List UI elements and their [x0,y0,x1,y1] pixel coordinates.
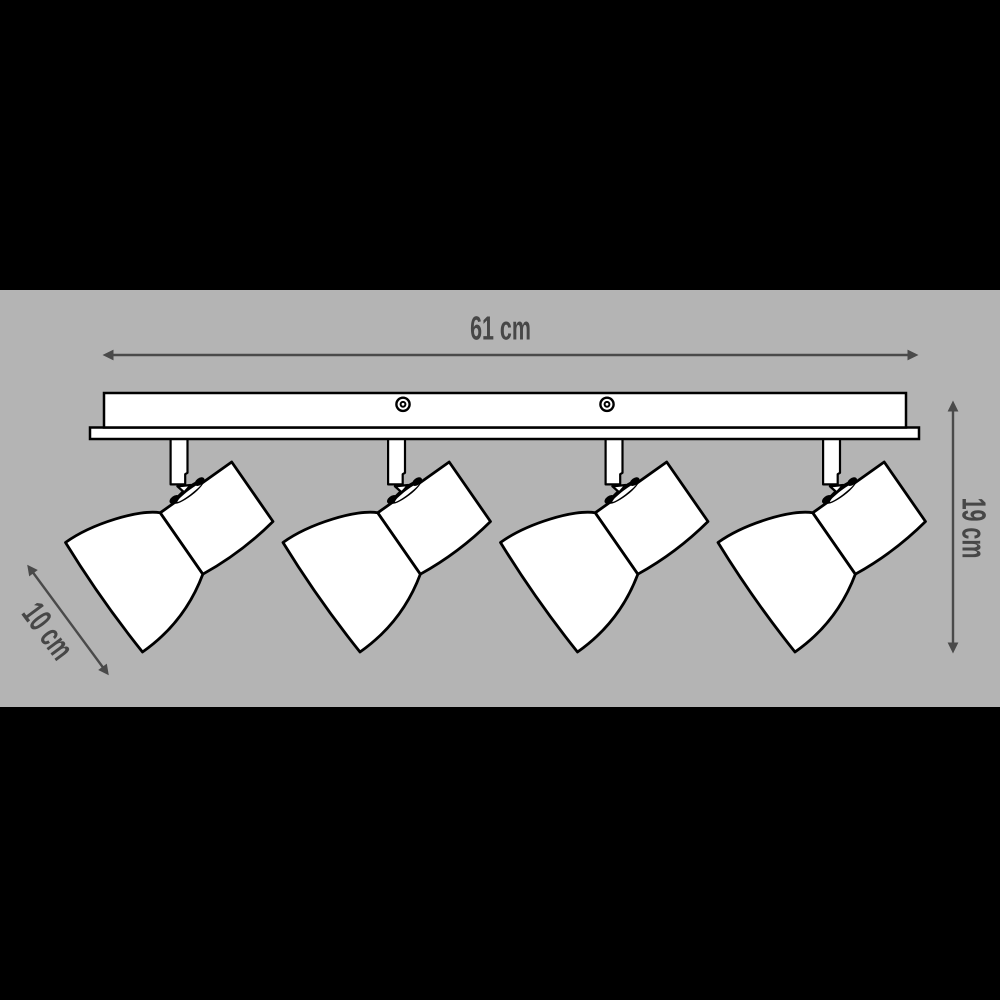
svg-text:19 cm: 19 cm [955,498,992,559]
svg-text:61 cm: 61 cm [470,311,531,348]
